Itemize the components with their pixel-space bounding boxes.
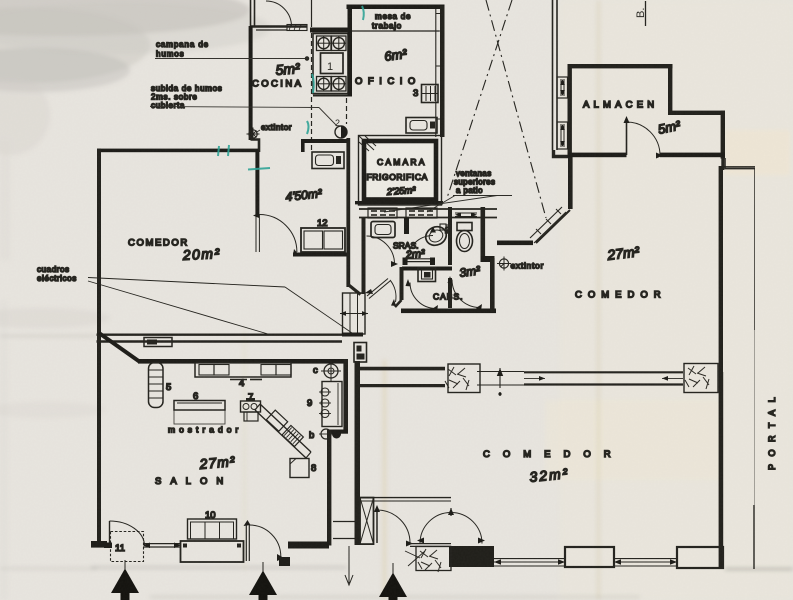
- svg-text:extintor: extintor: [261, 123, 292, 132]
- svg-text:extintor: extintor: [511, 261, 544, 271]
- svg-text:2: 2: [445, 226, 450, 235]
- svg-text:trabajo: trabajo: [372, 22, 402, 31]
- svg-text:b: b: [309, 430, 314, 441]
- svg-text:ALMACEN: ALMACEN: [583, 100, 658, 111]
- svg-text:SALON: SALON: [155, 476, 232, 487]
- svg-text:cubierta: cubierta: [151, 101, 185, 110]
- svg-text:a patio: a patio: [456, 186, 483, 195]
- svg-text:CABS.: CABS.: [433, 292, 464, 302]
- svg-text:2'25m²: 2'25m²: [385, 185, 416, 198]
- svg-text:mesa de: mesa de: [375, 12, 411, 21]
- svg-text:1: 1: [327, 61, 333, 73]
- svg-text:cuadros: cuadros: [37, 265, 70, 274]
- svg-text:2m²: 2m²: [404, 248, 425, 262]
- svg-text:5: 5: [166, 382, 171, 393]
- svg-text:12: 12: [317, 218, 328, 229]
- svg-text:3: 3: [413, 88, 418, 99]
- svg-text:campana de: campana de: [156, 40, 209, 49]
- svg-text:COCINA: COCINA: [252, 79, 303, 90]
- svg-text:6m²: 6m²: [383, 46, 408, 64]
- svg-text:3m²: 3m²: [458, 263, 481, 280]
- svg-text:eléctricos: eléctricos: [37, 274, 77, 283]
- svg-text:COMEDOR: COMEDOR: [483, 449, 624, 460]
- svg-text:FRIGORIFICA: FRIGORIFICA: [367, 172, 428, 182]
- svg-text:11: 11: [115, 543, 125, 554]
- svg-text:27m²: 27m²: [198, 453, 236, 472]
- svg-text:5m²: 5m²: [275, 60, 302, 78]
- svg-text:7: 7: [248, 392, 253, 403]
- svg-text:c: c: [313, 365, 318, 376]
- svg-text:CAMARA: CAMARA: [377, 157, 427, 167]
- svg-text:humos: humos: [156, 50, 185, 59]
- svg-text:COMEDOR: COMEDOR: [128, 238, 189, 249]
- svg-text:4: 4: [239, 378, 244, 389]
- svg-text:20m²: 20m²: [181, 245, 221, 263]
- svg-text:9: 9: [307, 398, 312, 409]
- svg-text:mostrador: mostrador: [168, 425, 242, 435]
- svg-text:PORTAL: PORTAL: [767, 390, 777, 470]
- svg-text:2: 2: [335, 118, 340, 128]
- svg-text:6: 6: [193, 391, 198, 402]
- svg-text:8: 8: [311, 463, 316, 474]
- svg-text:COMEDOR: COMEDOR: [575, 290, 667, 301]
- svg-text:OFICIO: OFICIO: [355, 76, 421, 87]
- svg-text:10: 10: [205, 510, 216, 521]
